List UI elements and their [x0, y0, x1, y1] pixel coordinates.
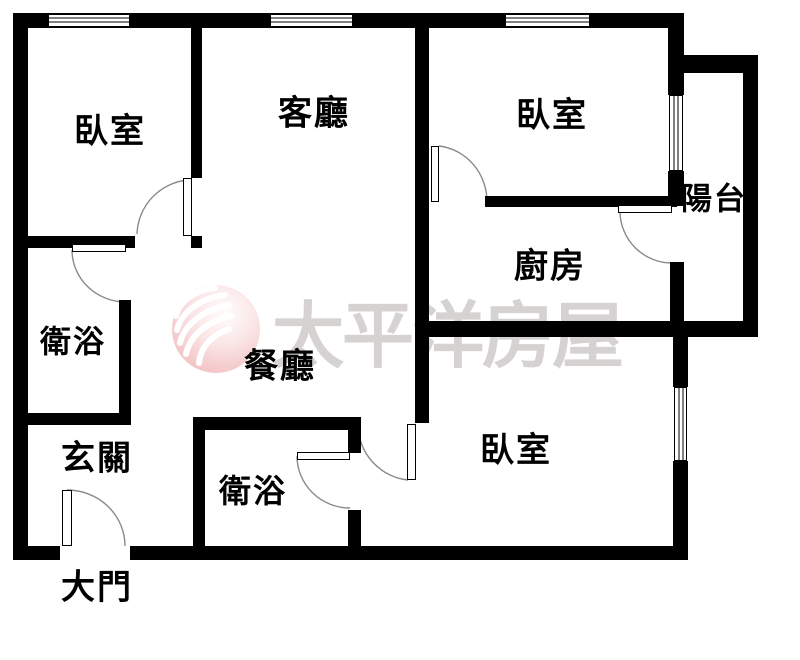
door-leaf-bathroom-left: [72, 244, 126, 252]
room-label-entry-hall: 玄關: [61, 431, 133, 480]
window-top-right: [505, 14, 590, 27]
window-bedroom-bottom: [674, 387, 687, 461]
window-top-left: [48, 14, 130, 27]
door-leaf-bedroom-bottom: [407, 424, 416, 480]
window-bedroom-top-right: [669, 95, 683, 171]
door-leaf-bathroom-center: [297, 452, 350, 460]
floor-plan: 太平洋房屋 臥室: [0, 0, 800, 660]
door-leaf-bedroom-top-left: [183, 178, 192, 236]
door-swing-arc-bathroom-center: [297, 456, 350, 508]
room-label-dining-room: 餐廳: [244, 339, 316, 388]
door-leaf-bedroom-top-right: [431, 146, 439, 202]
wall-bathroom-left-bottom: [13, 413, 131, 425]
wall-bathroom-center-right-upper: [348, 417, 361, 453]
room-label-bathroom-center: 衛浴: [219, 466, 287, 512]
door-leaf-balcony: [618, 205, 672, 213]
wall-bedroom-top-right-upper: [668, 13, 684, 95]
door-swing-arc-bedroom-top-right: [439, 146, 487, 202]
wall-kitchen-bottom: [415, 321, 758, 337]
wall-bathroom-center-top: [193, 417, 360, 430]
door-swing-arc-bedroom-top-left: [137, 180, 188, 234]
door-swing-arc-bedroom-bottom: [358, 424, 408, 480]
room-label-bathroom-left: 衛浴: [40, 317, 106, 362]
room-label-kitchen: 廚房: [514, 239, 586, 288]
door-leaf-main-door: [62, 490, 72, 546]
room-label-bedroom-top-left: 臥室: [74, 104, 146, 153]
room-label-bedroom-bottom: 臥室: [480, 423, 552, 472]
wall-exterior-bottom-left: [13, 546, 60, 560]
wall-bedroom-living-divider-stub: [191, 236, 202, 248]
wall-bathroom-center-right-lower: [348, 510, 361, 546]
wall-bathroom-center-left: [193, 417, 205, 546]
wall-bedroom-bottom-right-lower: [673, 461, 688, 551]
window-top-center: [270, 14, 353, 27]
wall-exterior-bottom: [130, 546, 688, 560]
door-swing-arc-bathroom-left: [72, 250, 126, 302]
wall-exterior-left: [13, 13, 28, 560]
room-label-balcony: 陽台: [681, 174, 747, 219]
door-swing-arc-main-door: [67, 490, 125, 546]
wall-bedroom-living-divider: [191, 28, 202, 178]
room-label-main-door: 大門: [61, 560, 133, 609]
wall-bathroom-left-right: [119, 300, 131, 425]
room-label-living-room: 客廳: [278, 86, 350, 135]
room-label-bedroom-top-right: 臥室: [516, 88, 588, 137]
door-swing-arc-balcony: [620, 211, 672, 263]
wall-kitchen-right-stub: [670, 262, 684, 322]
wall-bedroom-bottom-right-upper: [673, 337, 688, 387]
wall-center-divider: [415, 13, 429, 423]
